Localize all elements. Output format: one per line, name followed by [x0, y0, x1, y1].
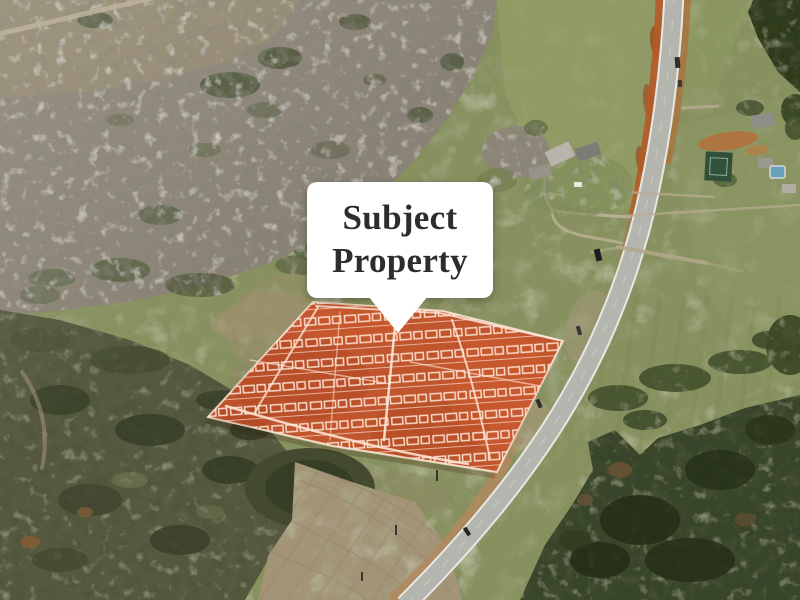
callout-label: Subject Property	[314, 197, 486, 282]
aerial-map: Subject Property	[0, 0, 800, 600]
subject-property-callout: Subject Property	[307, 182, 493, 298]
callout-tail	[368, 296, 428, 333]
